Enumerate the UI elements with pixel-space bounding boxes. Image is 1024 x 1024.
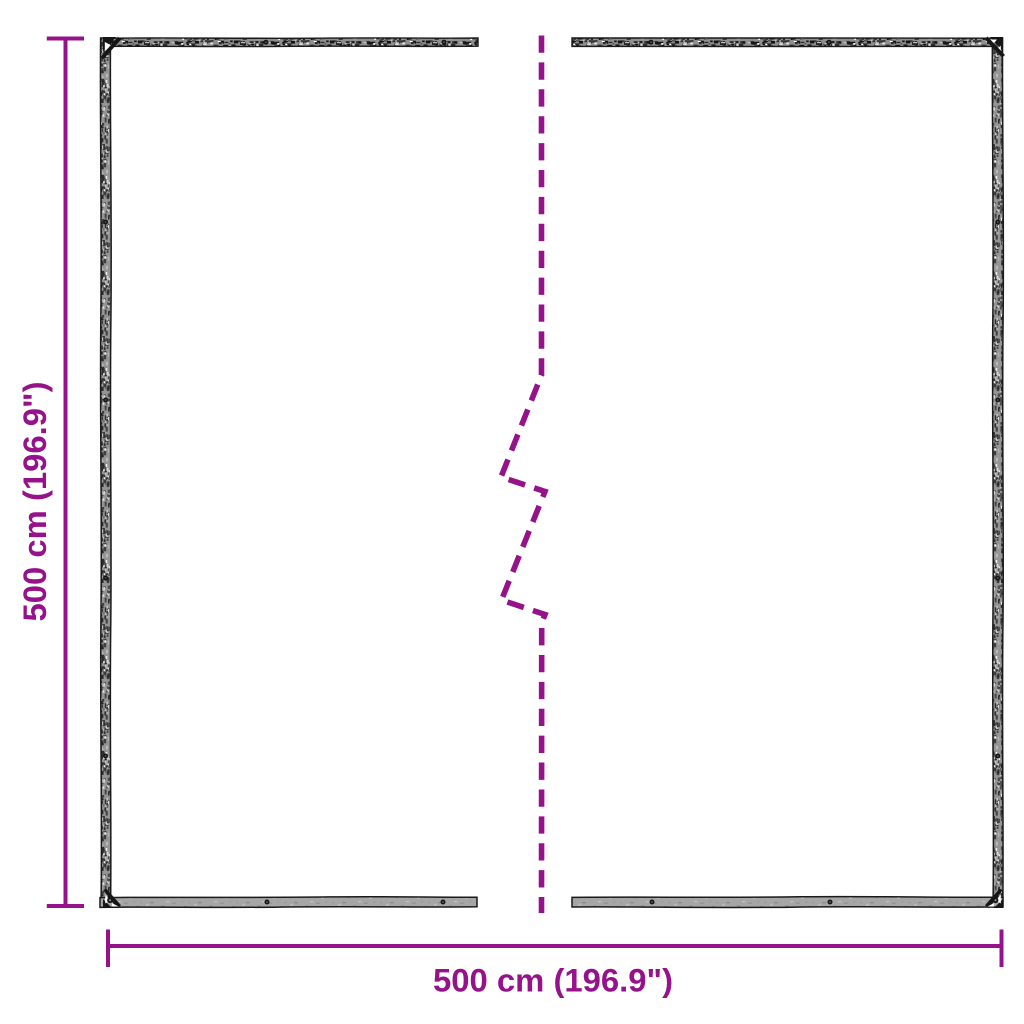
svg-text:500 cm (196.9"): 500 cm (196.9")	[17, 382, 53, 622]
svg-text:500 cm (196.9"): 500 cm (196.9")	[433, 963, 673, 999]
